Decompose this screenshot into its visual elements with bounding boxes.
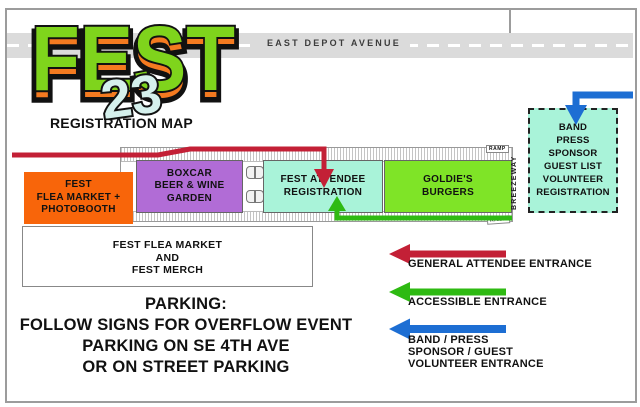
- booth-label-line: GOLDIE'S: [423, 174, 473, 187]
- legend-line: ACCESSIBLE ENTRANCE: [408, 296, 547, 308]
- breezeway-label: BREEZEWAY: [511, 150, 518, 216]
- booth-boxcar-beer-wine-garden: BOXCAR BEER & WINE GARDEN: [136, 160, 243, 213]
- booth-label-line: PHOTOBOOTH: [41, 204, 115, 217]
- road-name-label: EAST DEPOT AVENUE: [258, 38, 410, 48]
- parking-instructions: PARKING: FOLLOW SIGNS FOR OVERFLOW EVENT…: [8, 294, 364, 378]
- merch-box-line: AND: [23, 252, 312, 265]
- band-press-registration-box: BAND PRESS SPONSOR GUEST LIST VOLUNTEER …: [528, 108, 618, 213]
- street-divider-line: [509, 10, 511, 33]
- band-box-line: VOLUNTEER: [530, 173, 616, 186]
- parking-line: PARKING ON SE 4TH AVE: [8, 336, 364, 357]
- booth-label-line: REGISTRATION: [284, 187, 362, 200]
- band-box-line: GUEST LIST: [530, 160, 616, 173]
- booth-label-line: BURGERS: [422, 187, 474, 200]
- parking-line: OR ON STREET PARKING: [8, 357, 364, 378]
- legend-line: SPONSOR / GUEST: [408, 346, 544, 358]
- booth-label-line: GARDEN: [167, 193, 212, 206]
- merch-box-line: FEST MERCH: [23, 264, 312, 277]
- legend-general-attendee-entrance: GENERAL ATTENDEE ENTRANCE: [408, 258, 592, 270]
- ramp-label-top: RAMP: [486, 145, 509, 153]
- booth-label-line: FEST ATTENDEE: [280, 174, 365, 187]
- ramp-label-bottom: RAMP: [487, 215, 510, 225]
- logo-year: 23: [97, 63, 165, 120]
- legend-band-press-entrance: BAND / PRESS SPONSOR / GUEST VOLUNTEER E…: [408, 334, 544, 370]
- booth-fest-attendee-registration: FEST ATTENDEE REGISTRATION: [263, 160, 383, 213]
- parking-line: FOLLOW SIGNS FOR OVERFLOW EVENT: [8, 315, 364, 336]
- band-box-line: PRESS: [530, 134, 616, 147]
- fest-flea-market-merch-box: FEST FLEA MARKET AND FEST MERCH: [22, 226, 313, 287]
- merch-box-line: FEST FLEA MARKET: [23, 239, 312, 252]
- booth-fest-flea-market-photobooth: FEST FLEA MARKET + PHOTOBOOTH: [24, 172, 133, 224]
- legend-line: GENERAL ATTENDEE ENTRANCE: [408, 258, 592, 270]
- legend-line: VOLUNTEER ENTRANCE: [408, 358, 544, 370]
- booth-goldies-burgers: GOLDIE'S BURGERS: [384, 160, 512, 213]
- registration-map-page: EAST DEPOT AVENUE RAMP RAMP FEST FLEA MA…: [0, 0, 640, 407]
- booth-label-line: BOXCAR: [167, 168, 212, 181]
- band-box-line: SPONSOR: [530, 147, 616, 160]
- legend-line: BAND / PRESS: [408, 334, 544, 346]
- booth-label-line: FEST: [65, 179, 92, 192]
- registration-map-title: REGISTRATION MAP: [50, 115, 210, 131]
- fest-23-logo: FEST FEST 23: [24, 8, 242, 120]
- doorway-detail: [246, 166, 255, 179]
- booth-label-line: BEER & WINE: [155, 180, 225, 193]
- booth-label-line: FLEA MARKET +: [37, 192, 121, 205]
- doorway-detail: [246, 190, 255, 203]
- band-box-line: BAND: [530, 121, 616, 134]
- parking-line: PARKING:: [8, 294, 364, 315]
- band-box-line: REGISTRATION: [530, 186, 616, 199]
- legend-accessible-entrance: ACCESSIBLE ENTRANCE: [408, 296, 547, 308]
